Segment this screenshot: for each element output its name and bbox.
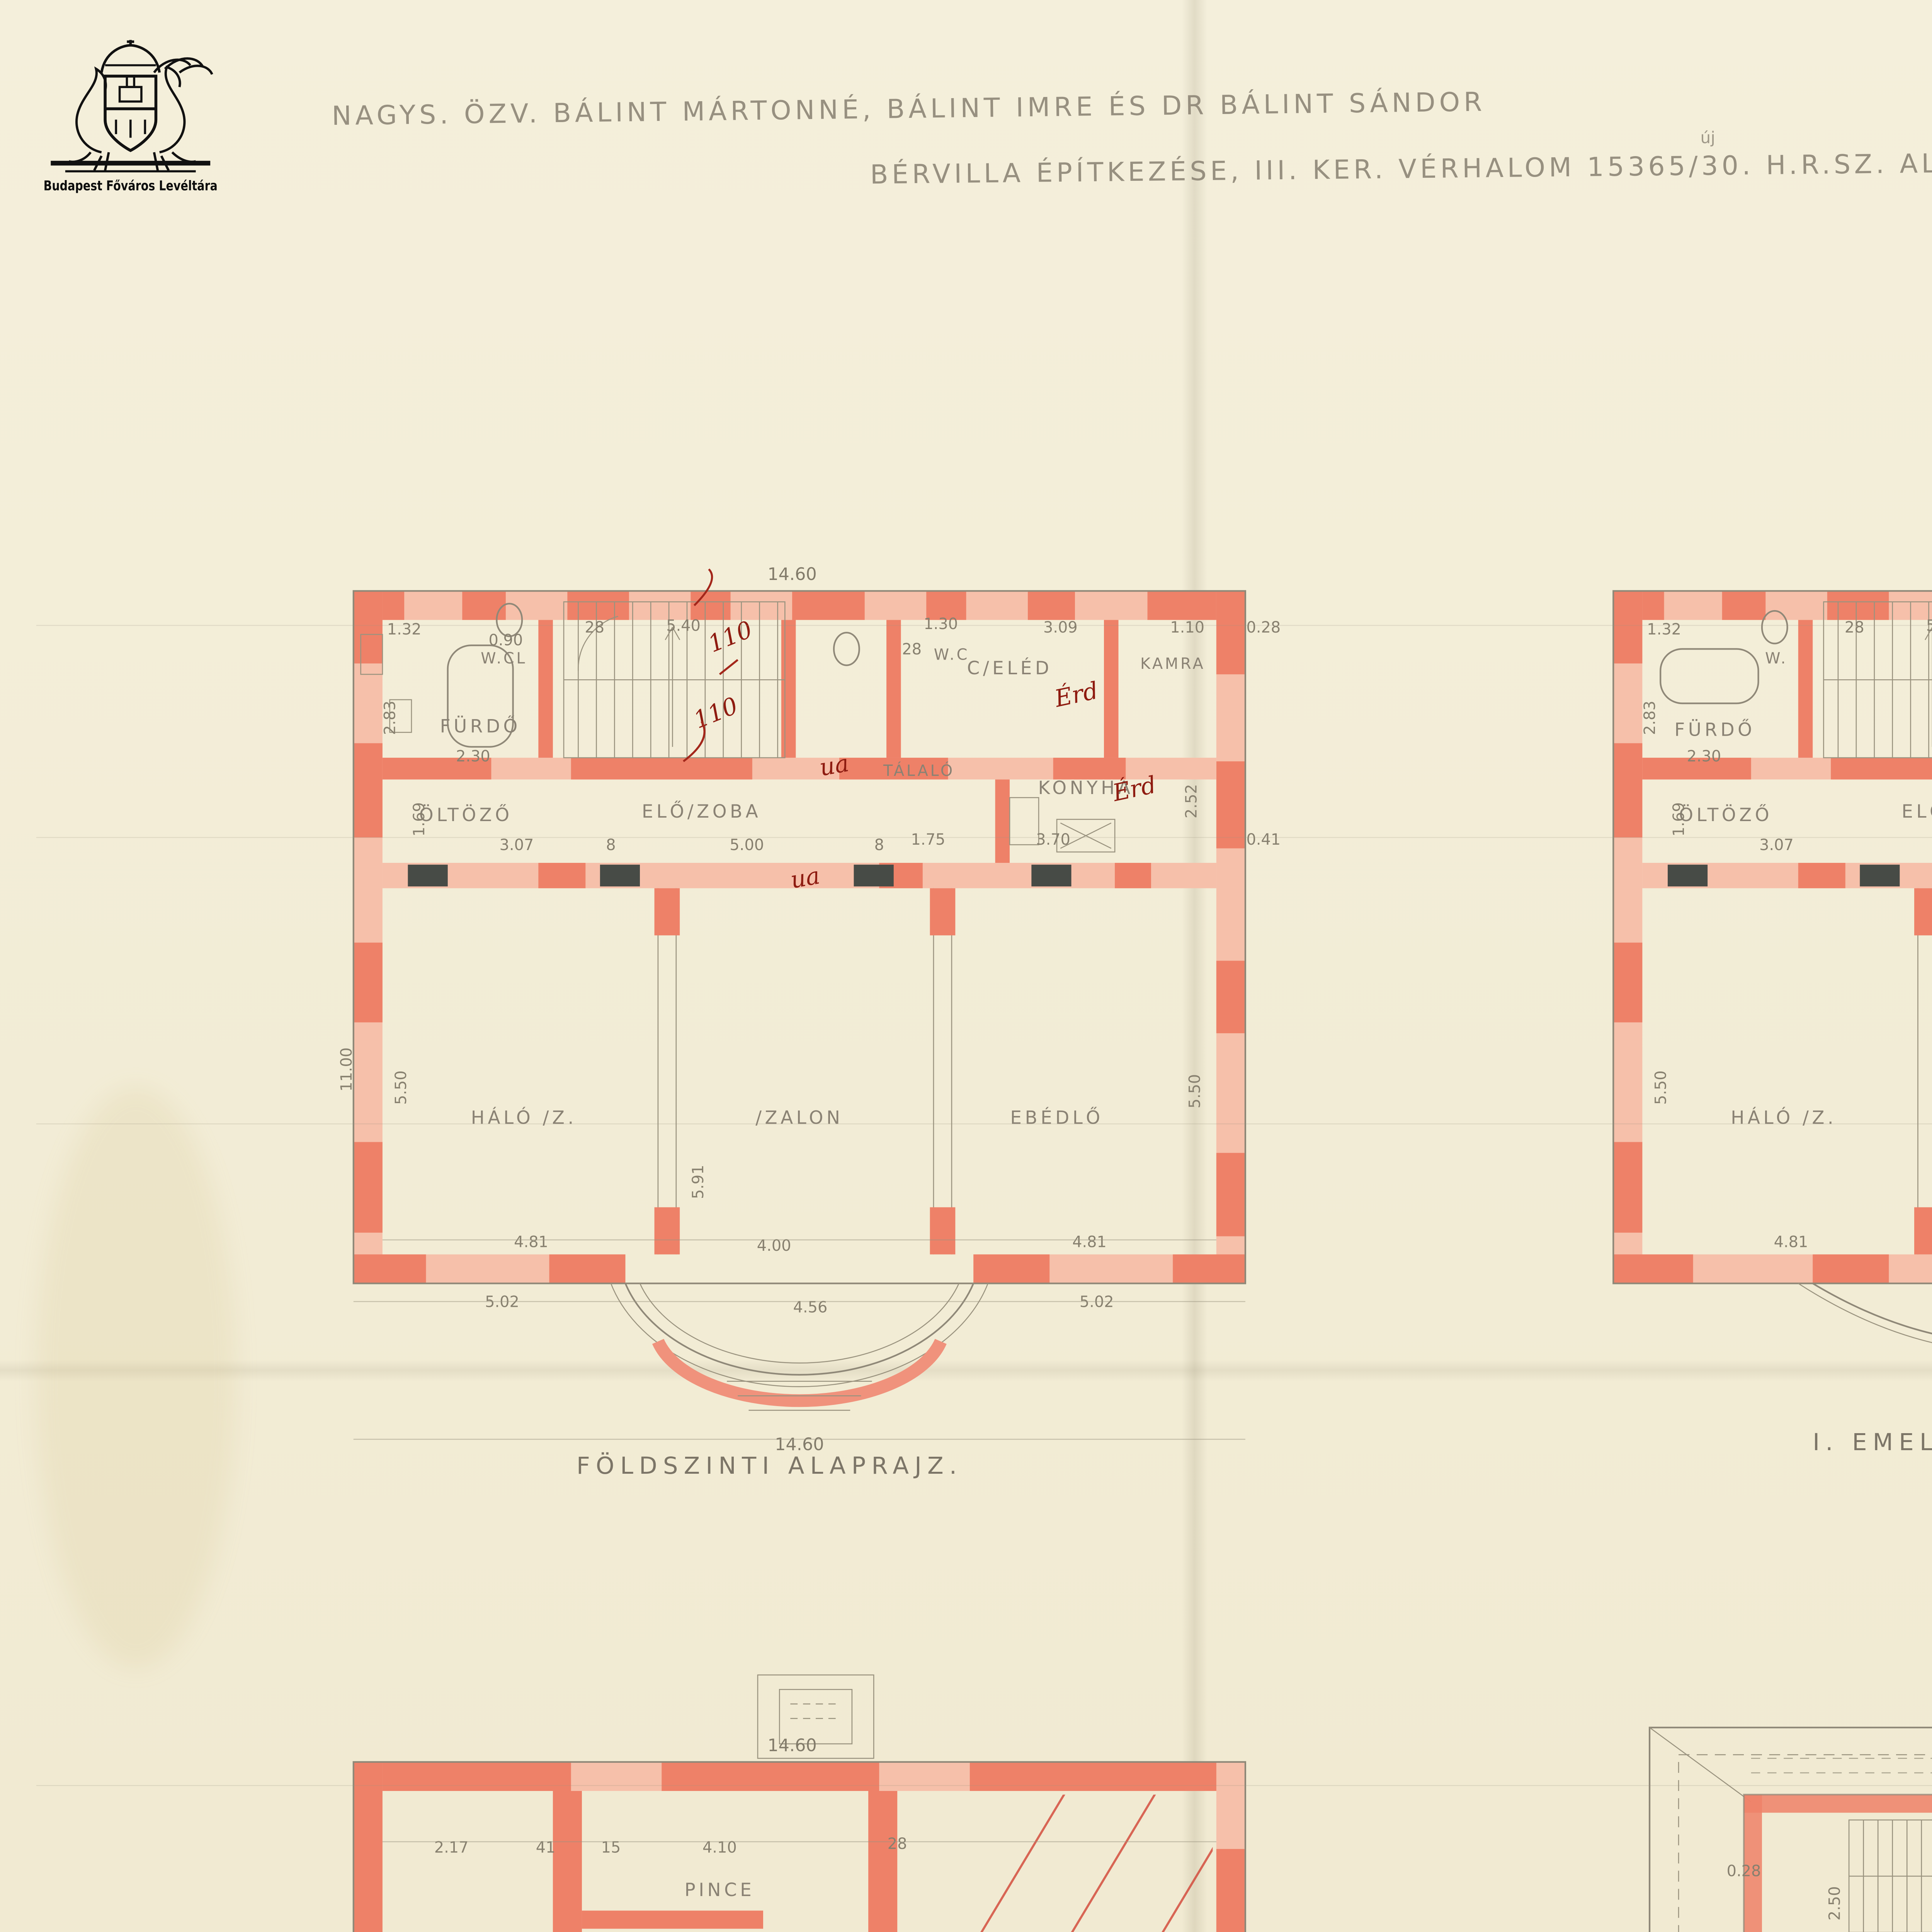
scanned-plan-sheet: Budapest Főváros Levéltára NAGYS. ÖZV. B… xyxy=(0,0,1932,1932)
pencil-guide-lines xyxy=(36,625,1932,1932)
page-overlay xyxy=(0,0,1932,1932)
red-ink-diagonal-line xyxy=(1483,1679,1932,1932)
